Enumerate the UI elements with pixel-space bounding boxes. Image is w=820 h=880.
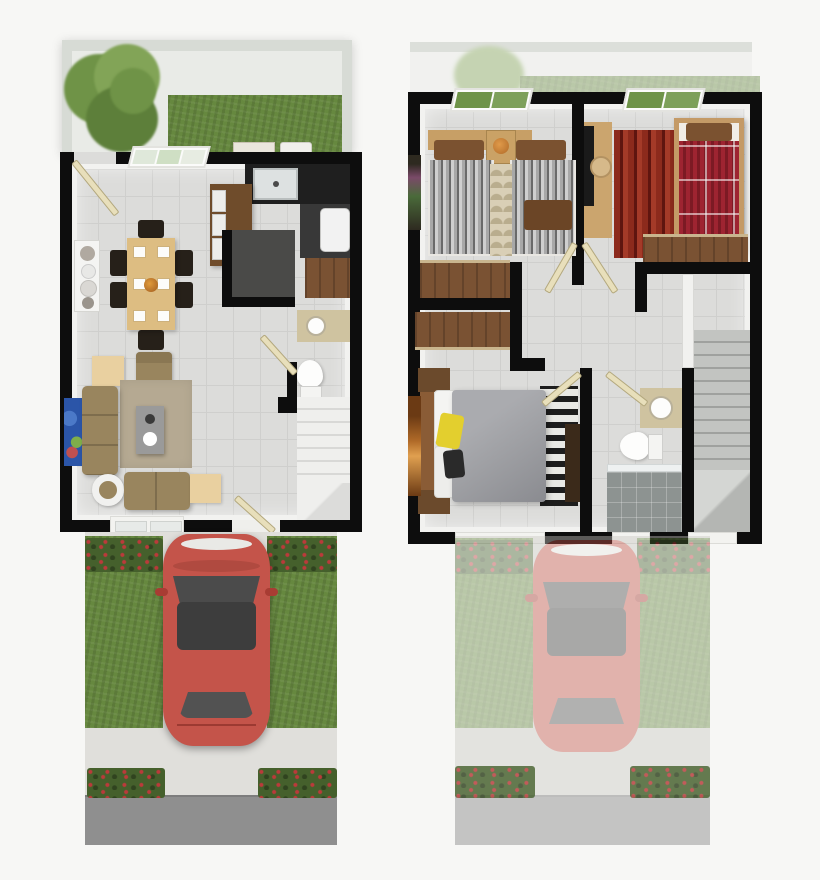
dining-chair: [110, 282, 128, 308]
side-table-bottom: [190, 474, 221, 503]
scene: [0, 0, 820, 880]
uf-driveway-faded: [455, 536, 710, 843]
decor-ball: [143, 432, 157, 446]
tree-canopy-4: [110, 68, 156, 114]
uf-yard-fence: [410, 42, 752, 52]
vase: [81, 264, 96, 279]
wall-bed1-bottom: [408, 298, 522, 310]
window-pane: [626, 92, 664, 108]
flower-hedge-top-right: [267, 538, 337, 572]
bath-vanity: [640, 388, 682, 428]
gf-stair-landing: [297, 483, 350, 520]
fruit-bowl: [144, 278, 158, 292]
uf-stairs: [694, 330, 750, 532]
wall-bath-right: [682, 368, 694, 532]
uf-hedge-street-left: [455, 766, 535, 798]
coffee-table: [136, 406, 164, 454]
red-bed-pillow: [686, 123, 732, 141]
ground-floor-panel: [0, 0, 410, 880]
bed1-nightstand: [486, 130, 516, 164]
car-windshield: [543, 582, 630, 610]
uf-stair-landing: [694, 470, 750, 532]
twin-bed-b-pillow: [516, 140, 566, 160]
gf-kitchen-window: [127, 146, 210, 168]
gf-stair-wall-stub: [278, 397, 299, 413]
vase: [80, 246, 95, 261]
placemat: [133, 246, 146, 258]
washing-machine: [320, 208, 350, 252]
master-dark-pillow: [443, 449, 466, 479]
island-drawer: [212, 190, 226, 212]
round-ottoman: [92, 474, 124, 506]
stairwell-guard-wall: [682, 274, 694, 368]
bath-toilet-bowl: [620, 432, 650, 460]
twin-bed-a: [428, 160, 494, 256]
vase: [82, 297, 94, 309]
window-pane: [132, 150, 157, 164]
flower-hedge-top-left: [85, 538, 163, 572]
uf-hedge-street-right: [630, 766, 710, 798]
shower-floor: [607, 472, 682, 532]
uf-yard-faded: [410, 42, 752, 92]
bedroom1-window: [449, 88, 533, 112]
car-mirror-right: [635, 594, 648, 602]
car-roof: [177, 602, 256, 650]
gf-wall-bottom: [60, 520, 362, 532]
bedroom2-desk-chair: [590, 156, 612, 178]
bedroom2-cabinet: [643, 234, 748, 262]
wall-master-right: [580, 368, 592, 532]
wall-bed2-stub: [635, 262, 647, 312]
bedroom1-wardrobe: [420, 260, 510, 298]
uf-hedge-top-left: [455, 540, 533, 574]
powder-toilet-bowl: [297, 360, 323, 388]
bedroom2-window: [621, 88, 705, 112]
upper-floor-panel: [400, 0, 820, 880]
backyard: [62, 40, 352, 154]
red-bed-duvet: [679, 141, 739, 247]
bedroom1-wall-art: [408, 155, 421, 230]
storage-closet: [222, 230, 295, 307]
red-car: [163, 532, 270, 748]
window-pane: [115, 521, 147, 532]
master-nightstand-top: [418, 368, 450, 392]
bedroom1-rug: [490, 164, 512, 256]
window-pane: [663, 92, 701, 108]
loveseat: [124, 472, 190, 510]
twin-bed-b-throw: [524, 200, 572, 230]
sink-drain: [273, 181, 279, 187]
uf-hedge-top-right: [637, 540, 710, 574]
armchair-back: [136, 352, 172, 363]
master-wardrobe: [415, 312, 510, 350]
gf-stairs: [297, 397, 350, 520]
dining-chair: [138, 220, 164, 238]
gf-wall-left: [60, 152, 72, 532]
kitchen-sink: [253, 168, 298, 200]
powder-sink: [306, 316, 326, 336]
backyard-fence-right: [342, 40, 352, 154]
decor-bowl: [145, 414, 155, 424]
backyard-tree: [64, 44, 180, 160]
window-pane: [150, 521, 182, 532]
master-wall-art: [408, 396, 421, 496]
window-pane: [180, 150, 205, 164]
car-rear-window: [549, 698, 624, 724]
placemat: [133, 310, 146, 322]
window-pane: [491, 92, 529, 108]
dining-chair: [110, 250, 128, 276]
uf-wall-right: [750, 92, 762, 544]
dining-table: [127, 238, 175, 330]
gf-driveway: [85, 532, 337, 843]
bed1-lamp: [493, 138, 509, 154]
gf-patio-doorway: [74, 152, 116, 164]
wall-bed2-bottom: [635, 262, 750, 274]
placemat: [157, 310, 170, 322]
placemat: [157, 246, 170, 258]
gf-stair-steps: [297, 397, 350, 483]
car-windshield: [173, 576, 260, 604]
uf-stair-steps: [694, 330, 750, 470]
street: [85, 795, 337, 845]
gf-wall-right: [350, 152, 362, 532]
car-mirror-left: [155, 588, 168, 596]
dining-chair: [175, 250, 193, 276]
flower-hedge-street-right: [258, 768, 337, 798]
sofa: [82, 386, 118, 475]
red-car-faded: [533, 538, 640, 754]
blue-wall-art: [64, 398, 82, 466]
car-trunk-line: [177, 724, 256, 726]
wall-hall-stub: [510, 262, 522, 362]
dining-sideboard: [74, 240, 100, 312]
master-bed: [452, 390, 546, 502]
bath-toilet-tank: [648, 434, 663, 460]
uf-street: [455, 795, 710, 845]
car-windshield-glare: [551, 544, 622, 556]
shower-glass-edge: [607, 464, 682, 472]
twin-bed-a-pillow: [434, 140, 484, 160]
car-rear-window: [179, 692, 254, 718]
powder-vanity: [297, 310, 350, 342]
uf-yard-fade-layer: [410, 42, 752, 92]
master-dresser: [565, 424, 580, 502]
car-roof: [547, 608, 626, 656]
car-mirror-left: [525, 594, 538, 602]
wall-master-stub: [510, 358, 545, 371]
window-pane: [156, 150, 181, 164]
car-mirror-right: [265, 588, 278, 596]
dining-chair: [138, 330, 164, 350]
car-hood-line: [173, 560, 260, 572]
vase: [80, 280, 97, 297]
pantry-shelf: [305, 258, 350, 298]
placemat: [157, 278, 170, 290]
flower-hedge-street-left: [87, 768, 165, 798]
dining-chair: [175, 282, 193, 308]
window-pane: [454, 92, 492, 108]
car-windshield-glare: [181, 538, 252, 550]
bath-sink: [649, 396, 673, 420]
